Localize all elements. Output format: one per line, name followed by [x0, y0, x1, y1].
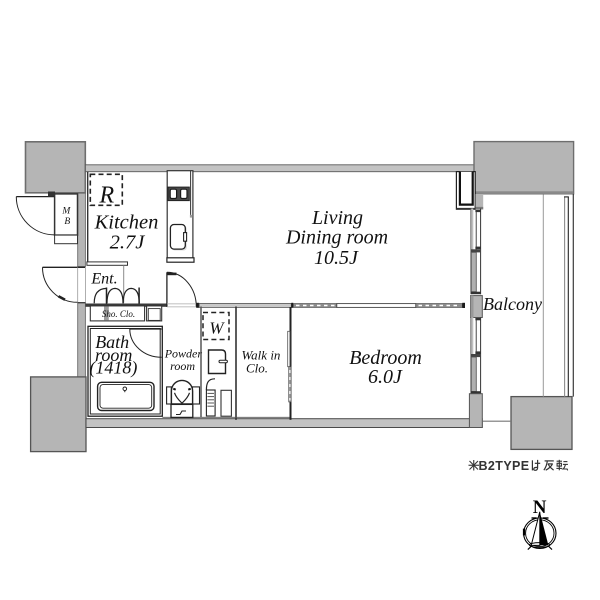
svg-text:M: M	[61, 207, 71, 217]
svg-text:Sho. Clo.: Sho. Clo.	[102, 309, 135, 319]
svg-text:Dining room: Dining room	[285, 227, 388, 249]
svg-text:W: W	[209, 319, 225, 338]
svg-text:10.5J: 10.5J	[314, 247, 359, 269]
svg-text:2.7J: 2.7J	[110, 231, 146, 253]
svg-text:6.0J: 6.0J	[368, 366, 403, 388]
svg-text:B: B	[64, 217, 70, 227]
svg-text:B2TYPE: B2TYPE	[479, 459, 530, 473]
svg-text:R: R	[98, 182, 114, 208]
svg-text:(1418): (1418)	[89, 358, 137, 379]
svg-text:room: room	[170, 359, 195, 373]
svg-text:Clo.: Clo.	[246, 361, 268, 376]
svg-text:Ent.: Ent.	[90, 270, 117, 287]
svg-text:Balcony: Balcony	[483, 294, 542, 314]
svg-text:Kitchen: Kitchen	[94, 212, 159, 234]
svg-text:Living: Living	[311, 207, 363, 229]
